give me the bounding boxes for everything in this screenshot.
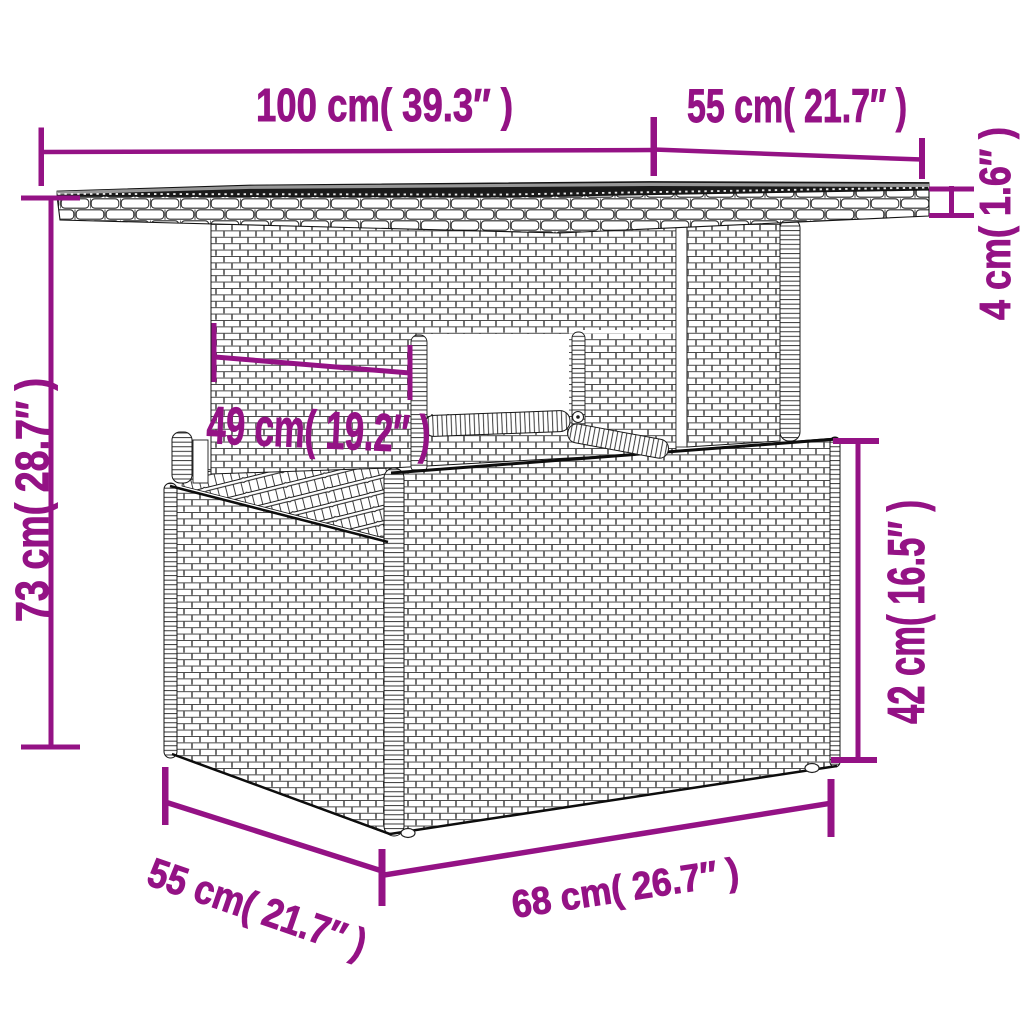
svg-text:4 cm( 1.6″ ): 4 cm( 1.6″ ): [971, 127, 1020, 320]
svg-text:100 cm( 39.3″ ): 100 cm( 39.3″ ): [256, 79, 513, 131]
svg-text:49 cm( 19.2″ ): 49 cm( 19.2″ ): [205, 396, 431, 465]
svg-text:42 cm( 16.5″ ): 42 cm( 16.5″ ): [878, 500, 936, 724]
svg-text:73 cm( 28.7″ ): 73 cm( 28.7″ ): [6, 378, 58, 622]
svg-text:55 cm( 21.7″ ): 55 cm( 21.7″ ): [687, 79, 907, 132]
